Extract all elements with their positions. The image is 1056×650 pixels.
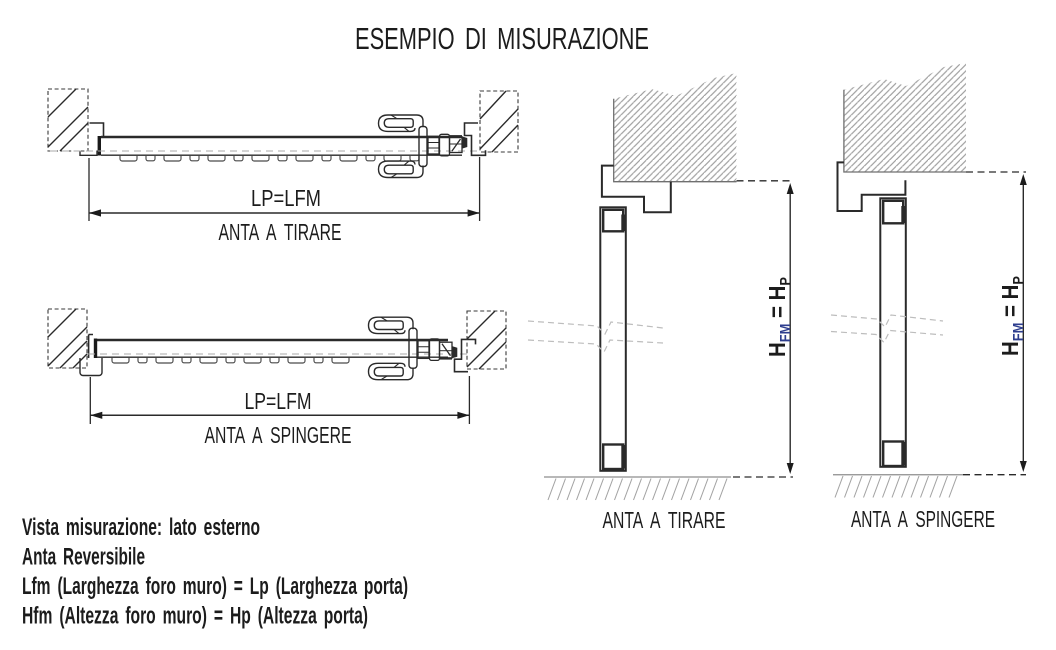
svg-text:HFM = HP: HFM = HP [764,277,794,357]
svg-text:Vista misurazione: lato estern: Vista misurazione: lato esterno [22,514,260,541]
svg-text:ANTA A TIRARE: ANTA A TIRARE [603,507,726,533]
svg-text:ANTA A SPINGERE: ANTA A SPINGERE [205,422,352,448]
svg-text:ANTA A SPINGERE: ANTA A SPINGERE [851,506,995,532]
svg-text:HFM = HP: HFM = HP [997,276,1027,356]
svg-text:ANTA A TIRARE: ANTA A TIRARE [219,219,342,245]
svg-text:Lfm (Larghezza foro muro) = Lp: Lfm (Larghezza foro muro) = Lp (Larghezz… [22,573,408,600]
svg-text:LP=LFM: LP=LFM [245,388,312,414]
svg-text:ESEMPIO DI MISURAZIONE: ESEMPIO DI MISURAZIONE [355,21,649,56]
svg-text:Hfm (Altezza foro muro) = Hp (: Hfm (Altezza foro muro) = Hp (Altezza po… [22,603,368,630]
svg-text:LP=LFM: LP=LFM [251,185,321,211]
svg-text:Anta Reversibile: Anta Reversibile [22,544,145,571]
